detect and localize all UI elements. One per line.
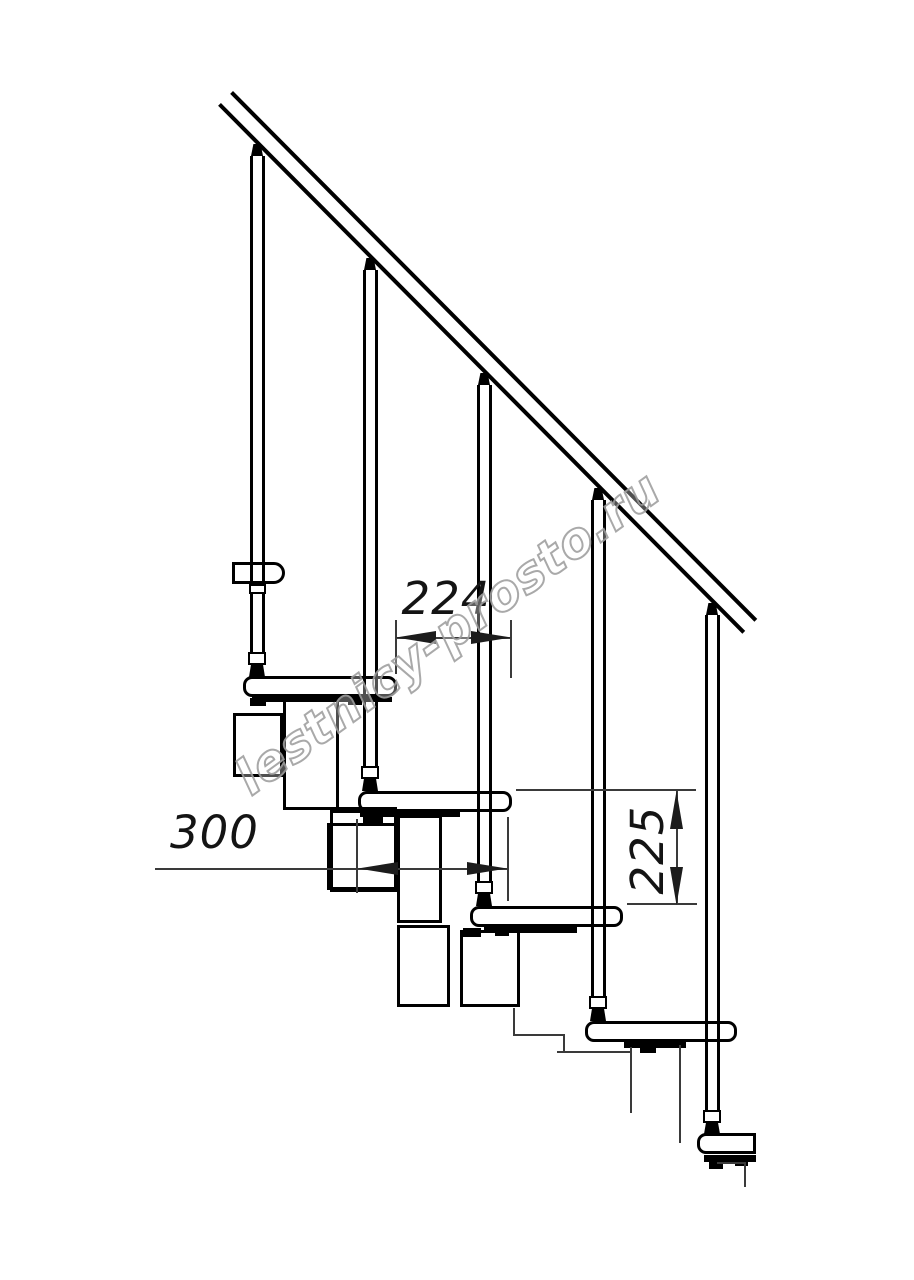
baluster5-line-right xyxy=(717,615,720,1110)
baluster2-step-connector xyxy=(362,779,378,791)
dim300-extension-left xyxy=(356,819,358,893)
baluster3-step-connector xyxy=(476,894,492,906)
baluster5-collar xyxy=(703,1110,721,1123)
dim225-extension-top xyxy=(516,789,696,791)
dim300-line xyxy=(155,868,508,870)
spine-outline-seg2 xyxy=(513,1034,565,1036)
step-plank-3 xyxy=(470,906,623,927)
spine-outline-seg4 xyxy=(557,1051,632,1053)
spine-outline-seg8 xyxy=(744,1163,746,1187)
baluster4-step-connector xyxy=(590,1009,606,1021)
dimension-label-225: 225 xyxy=(621,795,673,905)
spine-outline-seg5 xyxy=(630,1047,632,1113)
step1-joint-nub xyxy=(250,698,266,706)
baluster3-collar xyxy=(475,881,493,894)
step-plank-upper-partial xyxy=(232,562,285,584)
baluster5-step-connector xyxy=(704,1123,720,1134)
baluster4-line-left xyxy=(591,500,594,996)
support-module-2 xyxy=(327,823,397,890)
step-plank-5 xyxy=(697,1133,756,1154)
dim300-arrow-right xyxy=(467,862,507,875)
handrail xyxy=(218,91,757,634)
staircase-technical-drawing: 224 300 225 lestnicy-prosto.ru xyxy=(0,0,914,1280)
spine-outline-seg1 xyxy=(513,1008,515,1036)
baluster1-step-connector xyxy=(249,665,265,677)
baluster4-line-right xyxy=(603,500,606,996)
support-module-2b xyxy=(397,925,450,1007)
spine-outline-seg6 xyxy=(679,1045,681,1143)
watermark-text: lestnicy-prosto.ru xyxy=(197,440,704,833)
support-module-3 xyxy=(460,930,520,1007)
step-plank-4 xyxy=(585,1021,737,1042)
baluster1-collar-upper xyxy=(249,584,266,594)
baluster1-collar xyxy=(248,652,266,665)
baluster2-collar xyxy=(361,766,379,779)
dim300-extension-right xyxy=(507,817,509,901)
baluster4-collar xyxy=(589,996,607,1009)
spine-outline-seg7 xyxy=(717,1162,746,1164)
step4-joint-nub xyxy=(640,1046,656,1053)
baluster5-line-left xyxy=(705,615,708,1110)
